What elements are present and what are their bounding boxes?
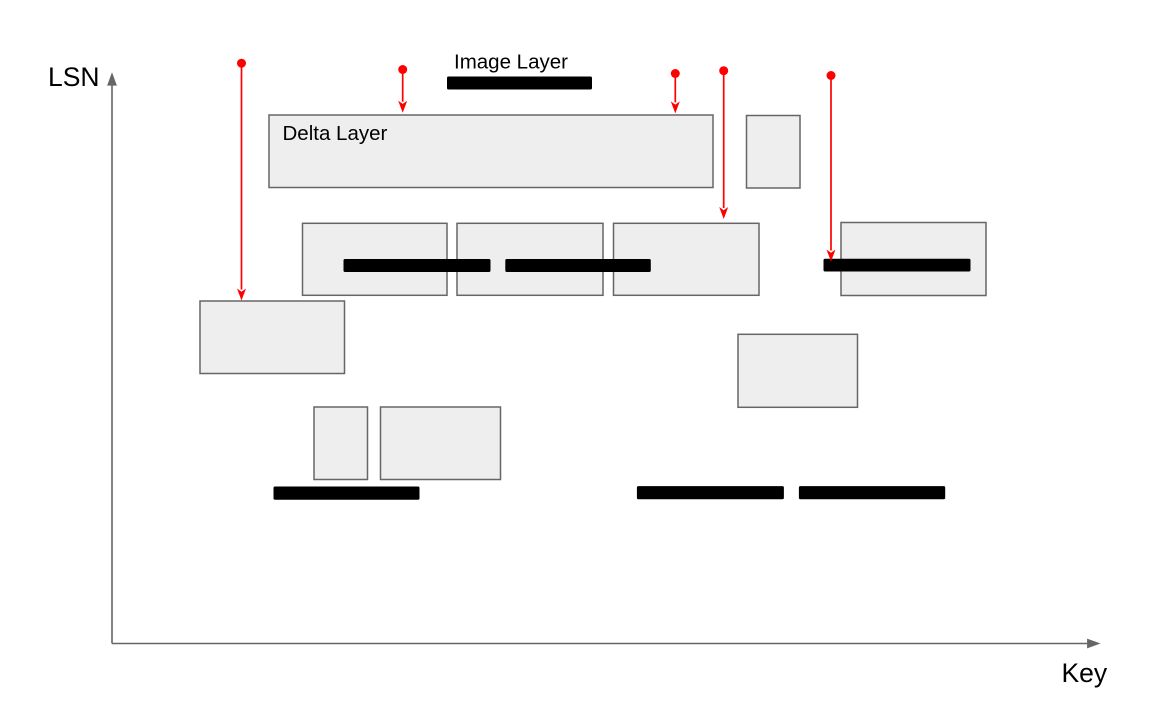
svg-text:Image Layer: Image Layer	[454, 51, 568, 74]
svg-text:LSN: LSN	[48, 62, 100, 92]
svg-text:Delta Layer: Delta Layer	[283, 122, 388, 145]
svg-text:Key: Key	[1062, 658, 1108, 688]
